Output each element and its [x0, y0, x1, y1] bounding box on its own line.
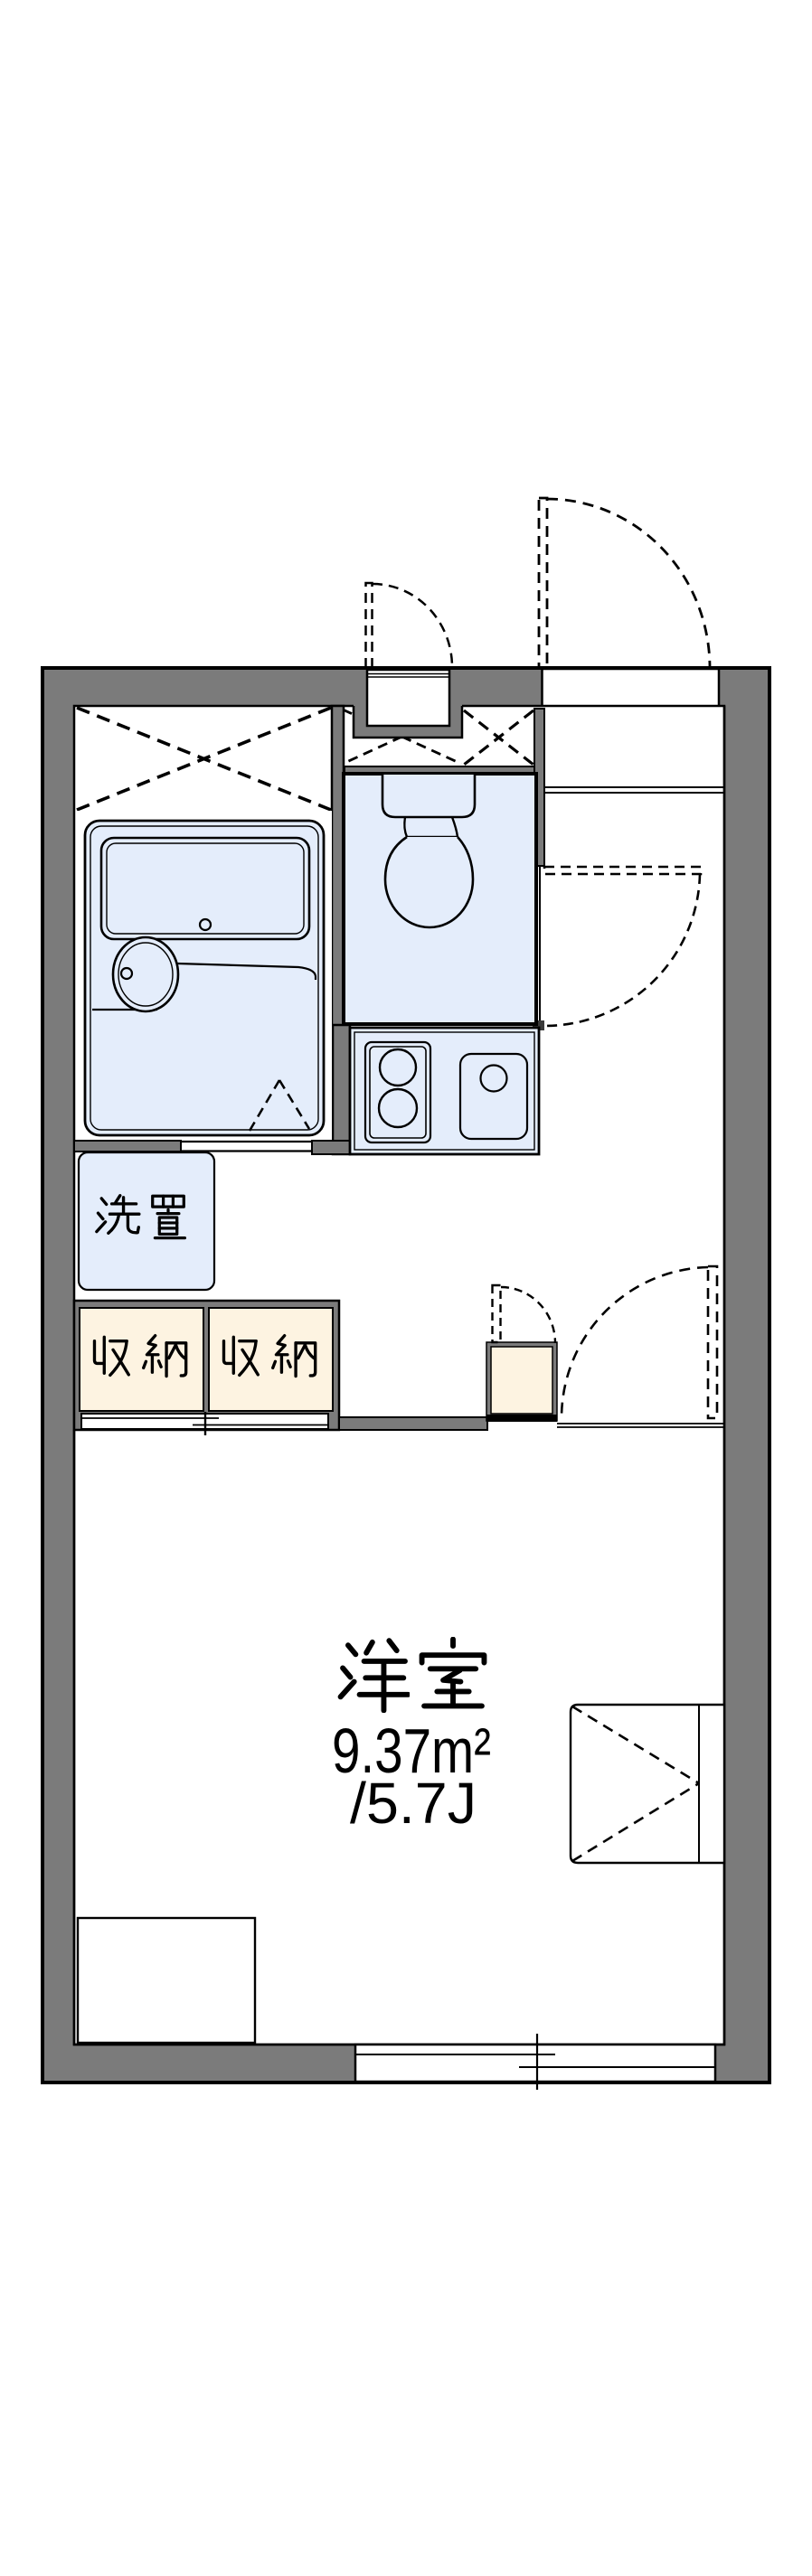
- svg-text:/5.7J: /5.7J: [350, 1771, 477, 1836]
